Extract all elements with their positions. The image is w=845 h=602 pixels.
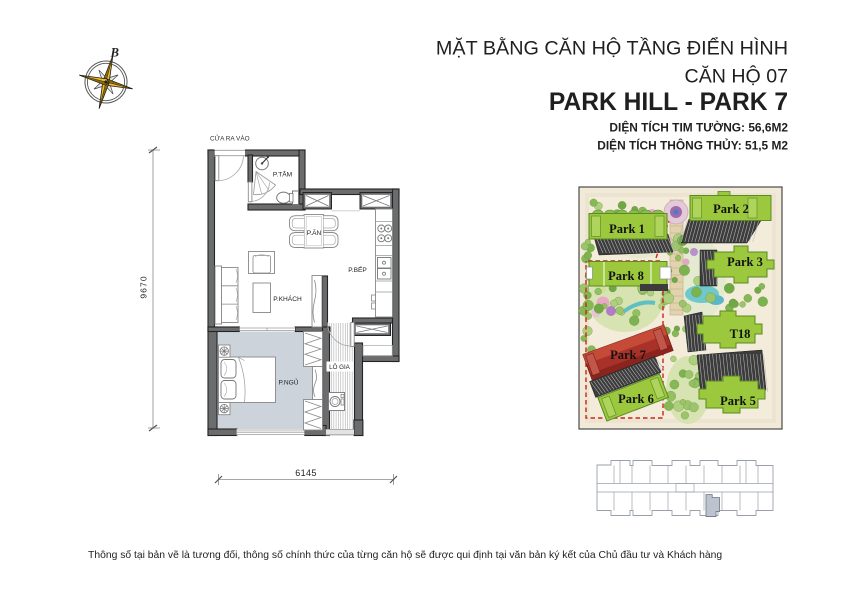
svg-text:T18: T18 — [730, 327, 751, 341]
svg-text:LÔ GIA: LÔ GIA — [329, 364, 351, 371]
svg-text:MẶT BẰNG CĂN HỘ TẦNG ĐIỂN HÌNH: MẶT BẰNG CĂN HỘ TẦNG ĐIỂN HÌNH — [436, 36, 788, 60]
svg-text:Park 1: Park 1 — [609, 222, 645, 236]
svg-text:Park 2: Park 2 — [713, 202, 749, 216]
svg-text:9670: 9670 — [139, 275, 149, 298]
svg-text:CỬA RA VÀO: CỬA RA VÀO — [210, 134, 250, 143]
svg-text:PARK HILL - PARK 7: PARK HILL - PARK 7 — [549, 89, 788, 116]
svg-text:6145: 6145 — [295, 468, 317, 478]
svg-text:Park 6: Park 6 — [618, 392, 654, 406]
svg-text:Park 8: Park 8 — [608, 269, 644, 283]
svg-text:P.TẮM: P.TẮM — [273, 170, 292, 179]
svg-text:CĂN HỘ 07: CĂN HỘ 07 — [685, 65, 788, 88]
svg-text:P.NGỦ: P.NGỦ — [278, 377, 298, 386]
svg-text:DIỆN TÍCH TIM TƯỜNG: 56,6M2: DIỆN TÍCH TIM TƯỜNG: 56,6M2 — [609, 120, 788, 135]
svg-text:DIỆN TÍCH THÔNG THỦY: 51,5 M2: DIỆN TÍCH THÔNG THỦY: 51,5 M2 — [597, 138, 788, 153]
svg-text:Park 7: Park 7 — [610, 348, 646, 362]
svg-text:Park 3: Park 3 — [727, 255, 763, 269]
svg-text:Park 5: Park 5 — [720, 394, 756, 408]
svg-text:B: B — [110, 46, 119, 60]
svg-text:P.KHÁCH: P.KHÁCH — [273, 294, 302, 303]
svg-text:Thông số tại bản vẽ là tương đ: Thông số tại bản vẽ là tương đối, thông … — [88, 549, 722, 561]
svg-text:P.ĂN: P.ĂN — [307, 228, 322, 237]
